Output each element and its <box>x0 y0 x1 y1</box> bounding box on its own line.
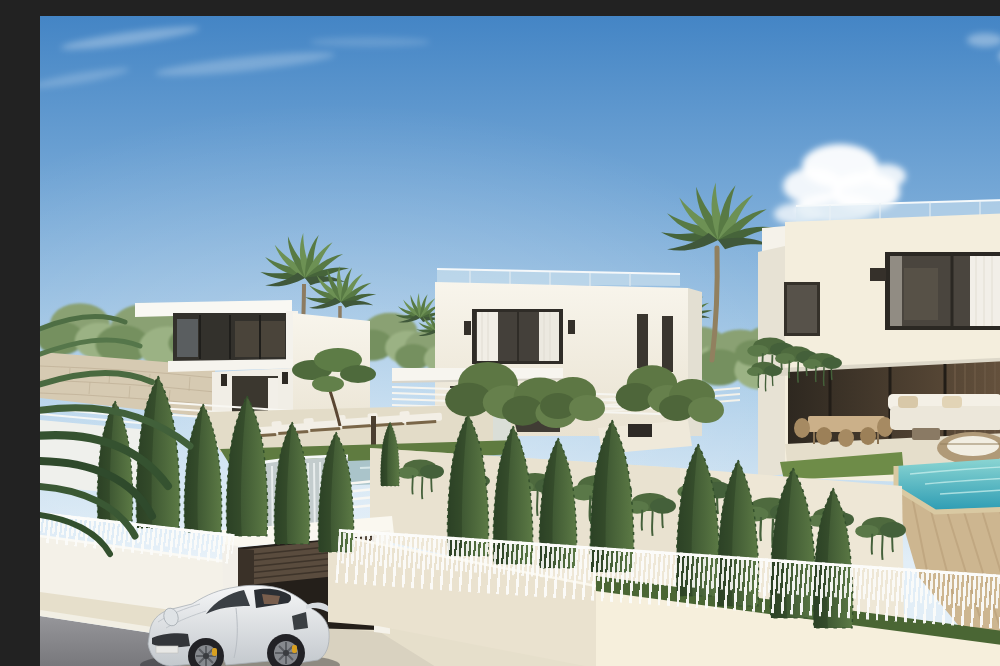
villa-right <box>747 199 1000 486</box>
curtain <box>970 256 1000 326</box>
license-plate <box>156 646 178 653</box>
slot-window <box>637 314 648 368</box>
wall-sconce-icon <box>870 268 886 281</box>
wall-sconce-icon <box>464 321 471 335</box>
wall-sconce-icon <box>568 320 575 334</box>
upper-window-large <box>885 252 1000 330</box>
wall-sconce-icon <box>221 374 227 386</box>
upper-window-small <box>784 282 820 336</box>
slot-window <box>662 316 673 372</box>
curtain <box>539 312 559 361</box>
upper-window <box>472 309 563 364</box>
architectural-render <box>40 16 1000 666</box>
wall-sconce-icon <box>282 372 288 384</box>
